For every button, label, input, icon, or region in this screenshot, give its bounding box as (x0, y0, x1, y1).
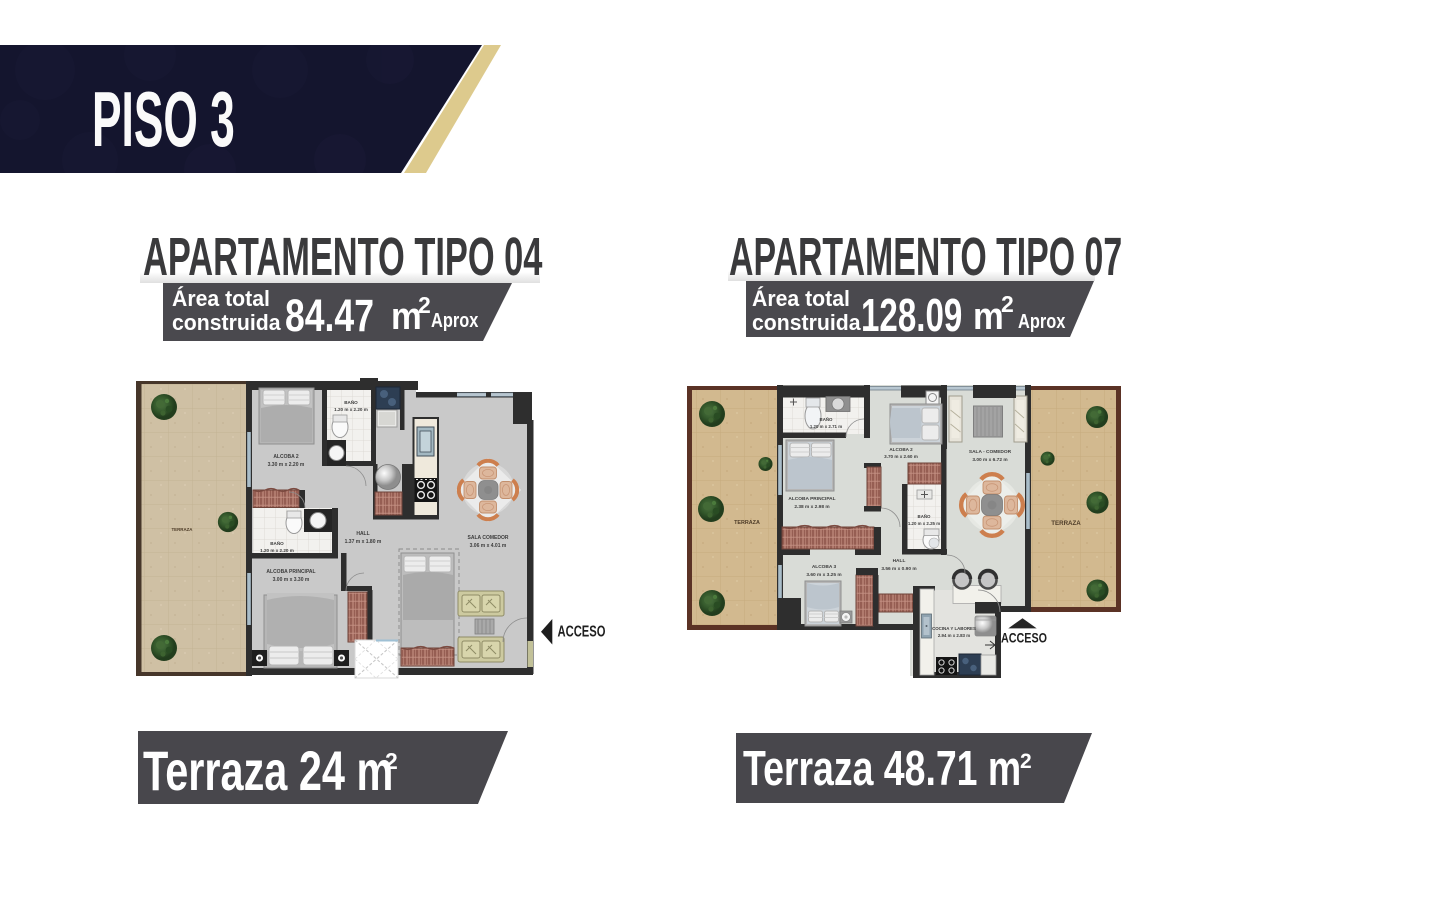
svg-text:SALA COMEDOR: SALA COMEDOR (468, 535, 509, 541)
svg-text:2.38 m x 2.98 m: 2.38 m x 2.98 m (794, 504, 829, 510)
svg-text:TERRAZA: TERRAZA (172, 527, 194, 532)
svg-text:SALA - COMEDOR: SALA - COMEDOR (969, 449, 1012, 455)
svg-text:ALCOBA PRINCIPAL: ALCOBA PRINCIPAL (266, 569, 315, 575)
svg-text:ALCOBA 2: ALCOBA 2 (273, 454, 299, 460)
svg-text:ACCESO: ACCESO (558, 623, 606, 640)
svg-text:3.00 m x 6.72 m: 3.00 m x 6.72 m (972, 457, 1007, 463)
svg-text:HALL: HALL (356, 531, 369, 537)
svg-text:TERRAZA: TERRAZA (734, 520, 760, 526)
svg-text:BAÑO: BAÑO (270, 540, 284, 546)
svg-text:3.70 m x 2.60 m: 3.70 m x 2.60 m (884, 454, 918, 459)
svg-text:3.00 m x 3.30 m: 3.00 m x 3.30 m (273, 577, 310, 583)
svg-text:HALL: HALL (893, 558, 906, 564)
svg-text:BAÑO: BAÑO (918, 514, 932, 519)
svg-text:COCINA Y LABORES: COCINA Y LABORES (932, 626, 976, 631)
svg-text:ACCESO: ACCESO (1001, 630, 1047, 646)
svg-text:3.60 m x 3.25 m: 3.60 m x 3.25 m (806, 572, 841, 578)
svg-text:3.06 m x 4.01 m: 3.06 m x 4.01 m (470, 543, 507, 549)
svg-text:1.20 m x 2.25 m: 1.20 m x 2.25 m (908, 521, 940, 526)
svg-text:ALCOBA 3: ALCOBA 3 (812, 564, 837, 570)
svg-text:1.20 m x 2.20 m: 1.20 m x 2.20 m (260, 548, 294, 553)
svg-text:1.20 m x 2.71 m: 1.20 m x 2.71 m (810, 424, 842, 429)
svg-text:ALCOBA PRINCIPAL: ALCOBA PRINCIPAL (788, 496, 835, 502)
svg-text:BAÑO: BAÑO (820, 417, 834, 422)
svg-text:ALCOBA 2: ALCOBA 2 (889, 447, 913, 452)
svg-text:TERRAZA: TERRAZA (1051, 520, 1081, 527)
svg-text:3.30 m x 2.20 m: 3.30 m x 2.20 m (268, 462, 305, 468)
svg-text:3.56 m x 0.90 m: 3.56 m x 0.90 m (881, 566, 916, 572)
svg-text:BAÑO: BAÑO (344, 399, 358, 405)
svg-text:1.37 m x 1.80 m: 1.37 m x 1.80 m (345, 539, 382, 545)
svg-text:2.94 m x 2.83 m: 2.94 m x 2.83 m (938, 633, 970, 638)
svg-text:1.20 m x 2.20 m: 1.20 m x 2.20 m (334, 407, 368, 412)
